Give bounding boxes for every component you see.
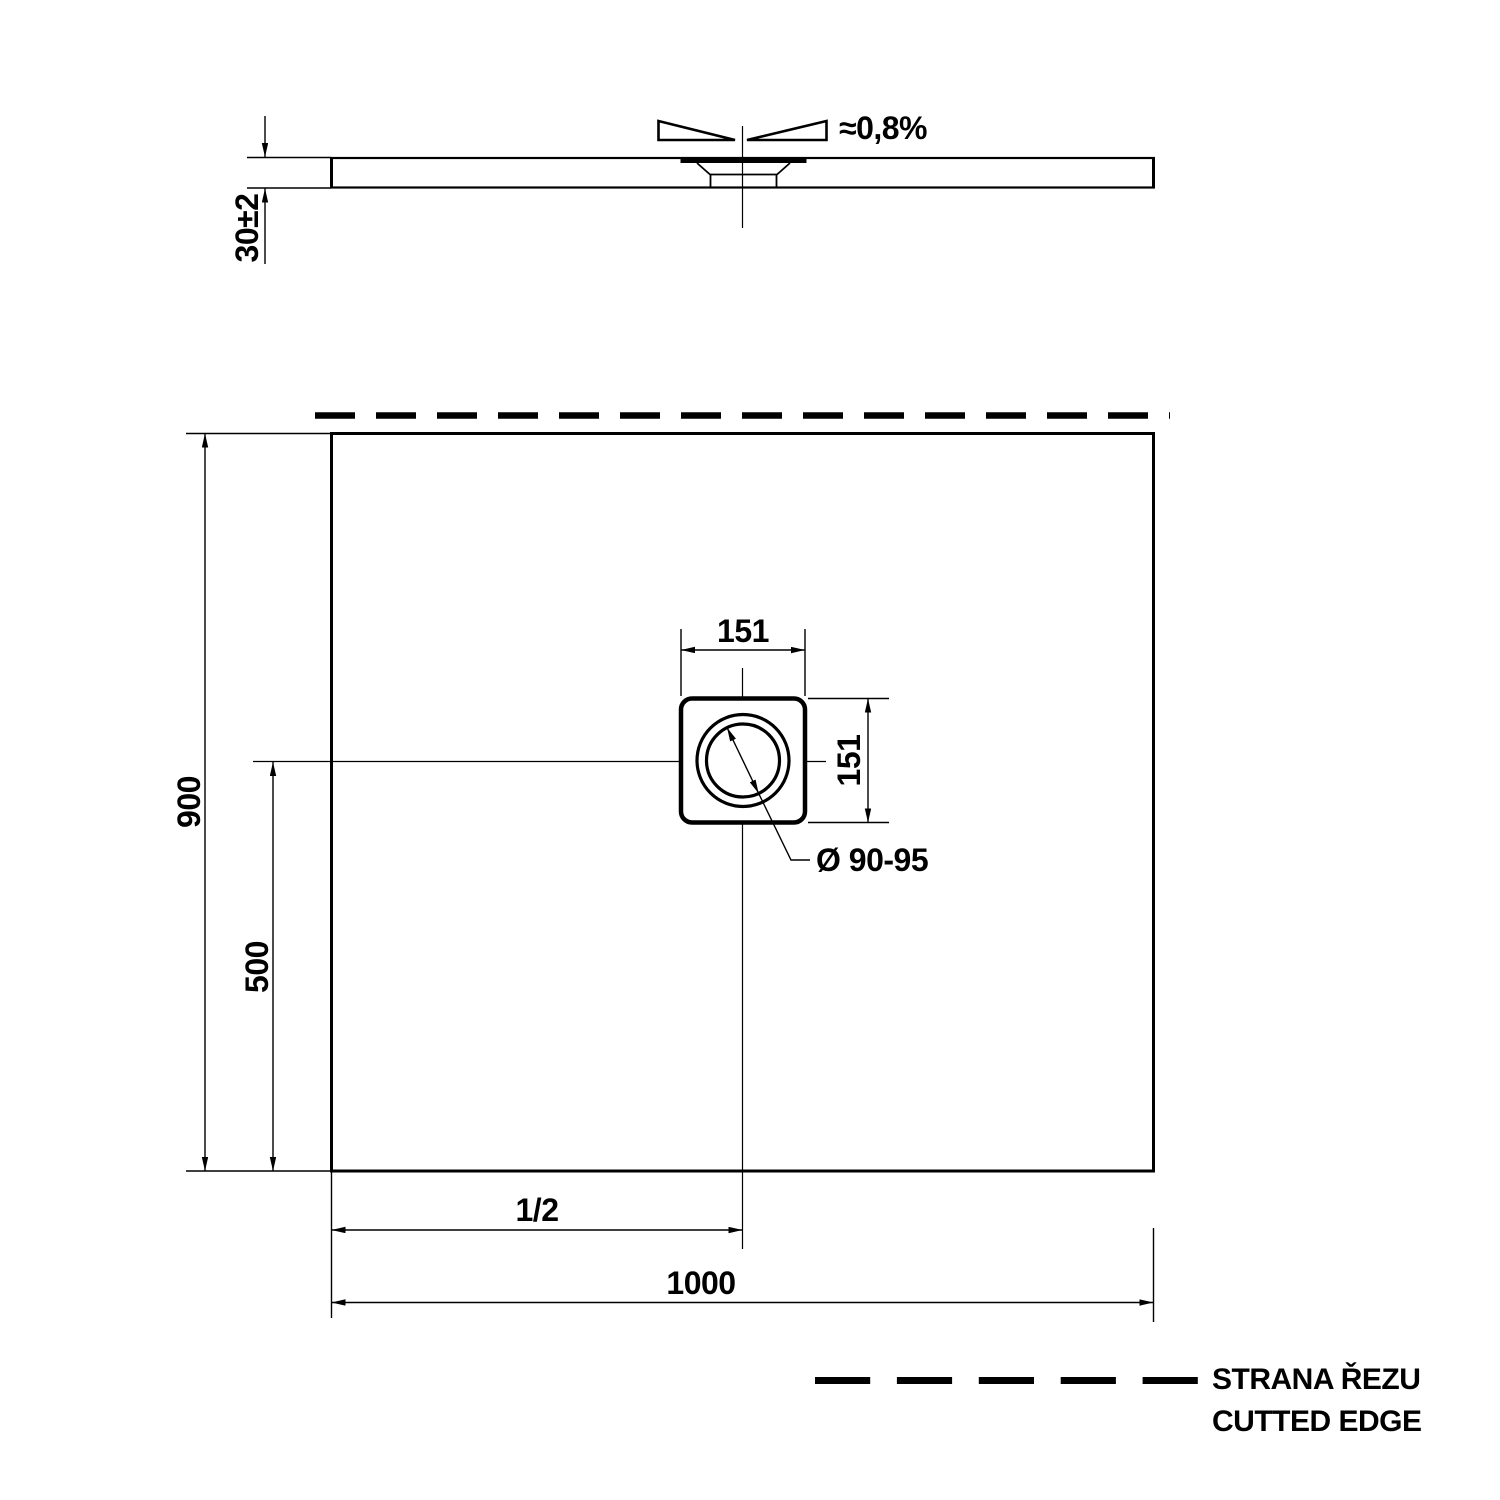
technical-drawing-canvas: 30±2 ≈0,8% 900 500 bbox=[0, 0, 1500, 1500]
width-dim-label: 1000 bbox=[666, 1265, 735, 1301]
drain-funnel-section bbox=[697, 163, 790, 187]
drain-flange-section bbox=[681, 158, 807, 164]
legend-label-english: CUTTED EDGE bbox=[1212, 1405, 1422, 1438]
legend-label-czech: STRANA ŘEZU bbox=[1212, 1362, 1420, 1396]
slope-wedge-left-icon bbox=[659, 121, 736, 140]
slope-label: ≈0,8% bbox=[839, 110, 927, 146]
height-dim-label: 900 bbox=[171, 776, 207, 828]
section-view: 30±2 ≈0,8% bbox=[229, 110, 1154, 264]
drain-diameter-label: Ø 90-95 bbox=[816, 842, 928, 878]
plan-view: 900 500 151 151 Ø 90-95 1/2 1000 bbox=[171, 416, 1170, 1323]
legend: STRANA ŘEZU CUTTED EDGE bbox=[815, 1362, 1422, 1438]
drain-width-dim-label: 151 bbox=[717, 613, 769, 649]
thickness-dim-label: 30±2 bbox=[229, 194, 265, 263]
half-dim-label: 1/2 bbox=[516, 1192, 559, 1228]
slope-wedge-right-icon bbox=[747, 121, 827, 140]
drain-offset-dim-label: 500 bbox=[239, 941, 275, 993]
drain-height-dim-label: 151 bbox=[831, 735, 867, 787]
